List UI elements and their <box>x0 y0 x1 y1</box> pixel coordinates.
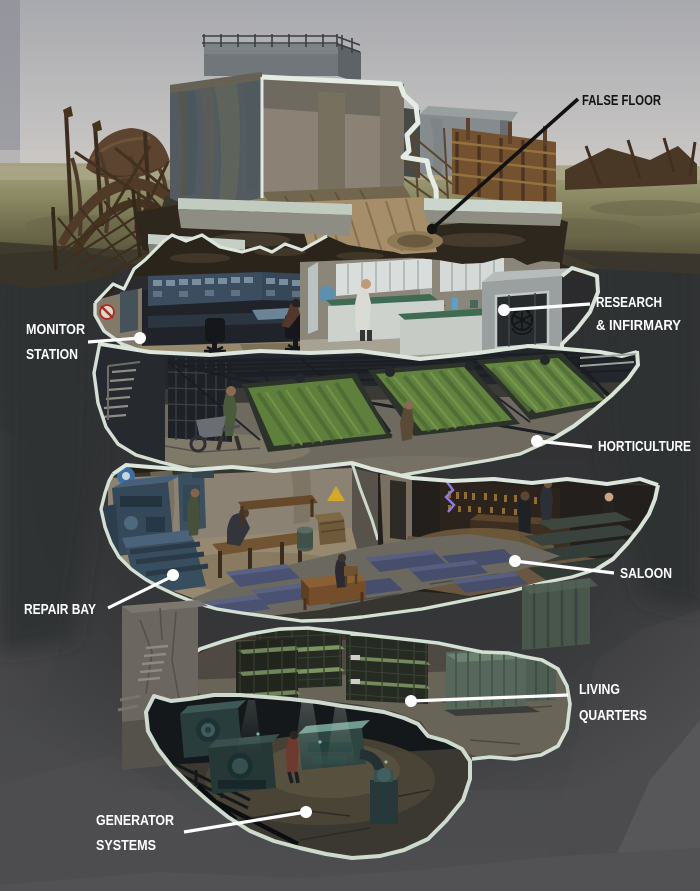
svg-text:SALOON: SALOON <box>620 566 672 582</box>
svg-text:SYSTEMS: SYSTEMS <box>96 838 156 854</box>
svg-text:HORTICULTURE: HORTICULTURE <box>598 439 691 455</box>
svg-text:GENERATOR: GENERATOR <box>96 813 174 829</box>
svg-text:FALSE FLOOR: FALSE FLOOR <box>582 93 661 109</box>
svg-text:LIVING: LIVING <box>579 682 620 698</box>
svg-text:STATION: STATION <box>26 347 78 363</box>
svg-text:& INFIRMARY: & INFIRMARY <box>596 318 681 334</box>
svg-text:MONITOR: MONITOR <box>26 322 85 338</box>
svg-text:REPAIR BAY: REPAIR BAY <box>24 602 96 618</box>
svg-text:RESEARCH: RESEARCH <box>596 295 662 311</box>
svg-text:QUARTERS: QUARTERS <box>579 708 647 724</box>
